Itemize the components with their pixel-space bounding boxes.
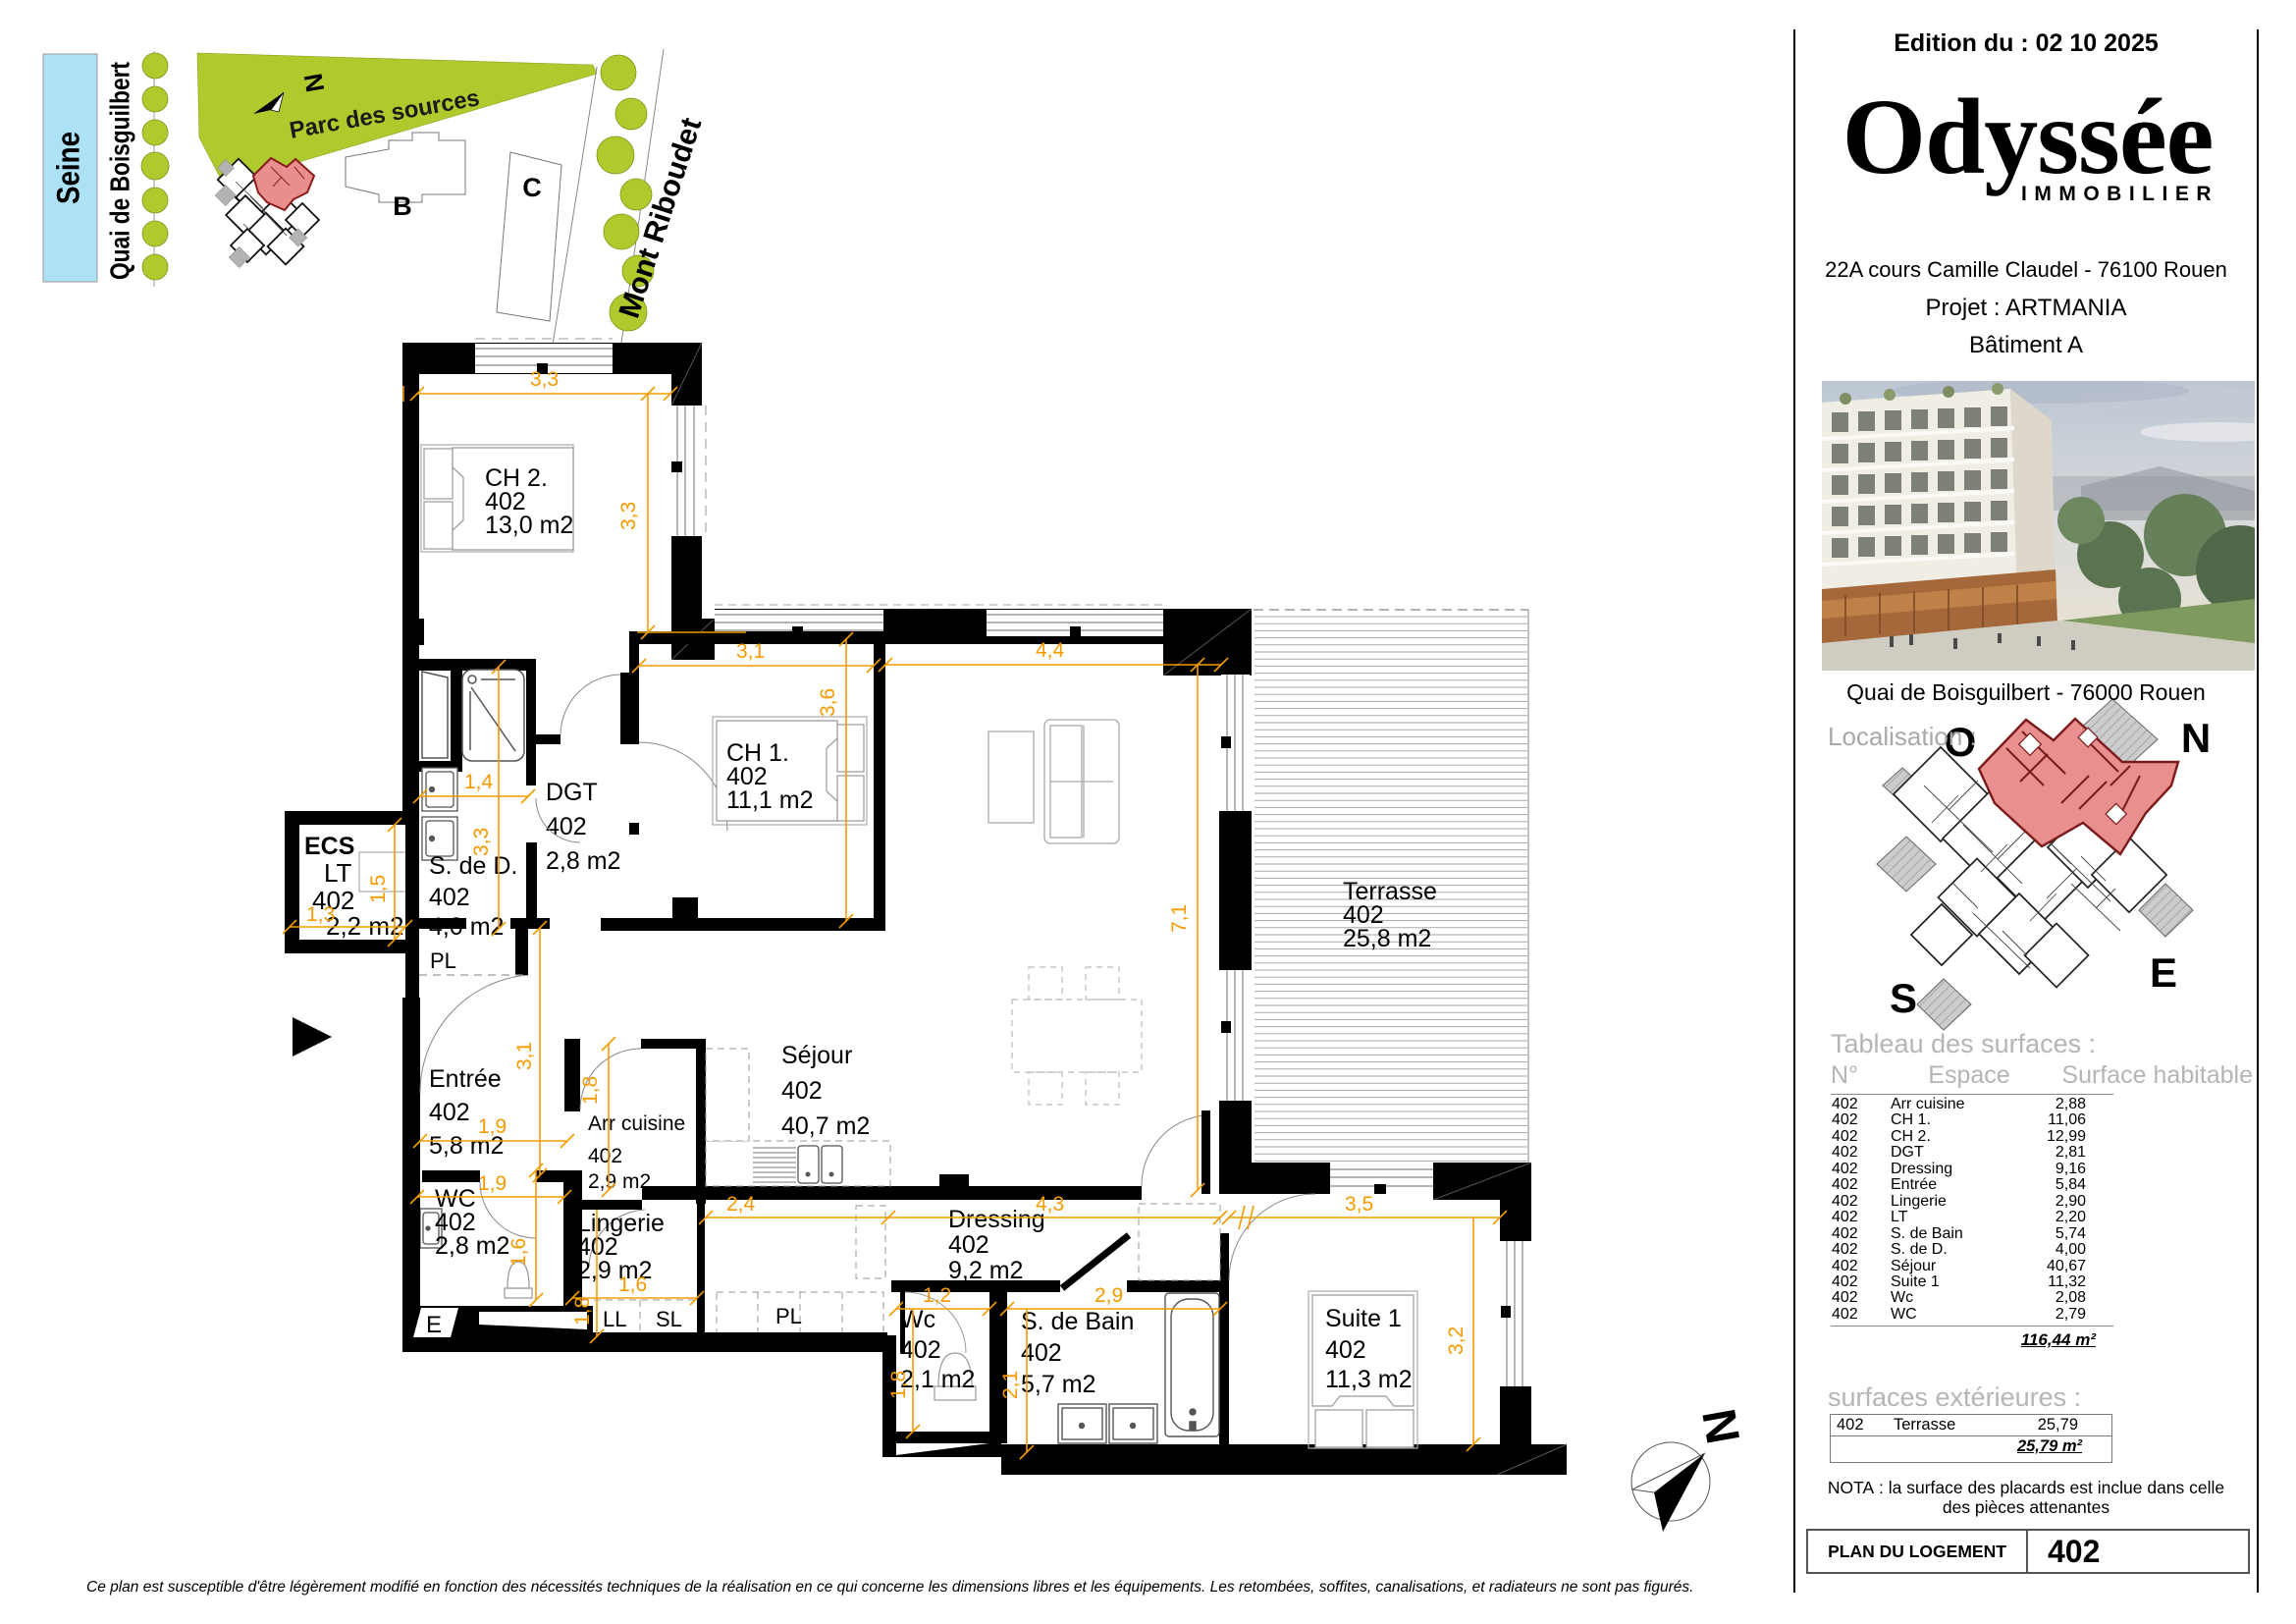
svg-text:N: N bbox=[2181, 715, 2211, 761]
svg-text:E: E bbox=[426, 1312, 442, 1338]
svg-text:402: 402 bbox=[781, 1077, 823, 1105]
svg-text:402: 402 bbox=[546, 813, 587, 840]
svg-text:1,5: 1,5 bbox=[367, 875, 390, 903]
svg-text:C: C bbox=[522, 173, 542, 202]
svg-text:Entrée: Entrée bbox=[429, 1065, 502, 1093]
svg-text:3,3: 3,3 bbox=[530, 368, 559, 391]
svg-text:402: 402 bbox=[948, 1231, 989, 1259]
svg-text:1,8: 1,8 bbox=[579, 1076, 602, 1105]
svg-text:1,9: 1,9 bbox=[478, 1172, 507, 1195]
svg-text:1,6: 1,6 bbox=[618, 1273, 647, 1296]
svg-text:3,6: 3,6 bbox=[817, 688, 839, 717]
svg-text:Arr cuisine: Arr cuisine bbox=[588, 1112, 685, 1135]
svg-text:402: 402 bbox=[900, 1336, 941, 1364]
svg-text:S: S bbox=[1890, 975, 1917, 1021]
svg-text:5,7 m2: 5,7 m2 bbox=[1021, 1371, 1095, 1398]
svg-text:3,5: 3,5 bbox=[1345, 1193, 1373, 1216]
svg-text:3,2: 3,2 bbox=[1445, 1326, 1468, 1355]
svg-text:402: 402 bbox=[588, 1145, 622, 1167]
svg-text:S. de Bain: S. de Bain bbox=[1021, 1308, 1134, 1335]
svg-text:Seine: Seine bbox=[50, 132, 85, 204]
svg-text:PL: PL bbox=[775, 1304, 802, 1328]
svg-text:402: 402 bbox=[1325, 1336, 1366, 1364]
svg-text:4,0 m2: 4,0 m2 bbox=[429, 913, 504, 941]
svg-text:N: N bbox=[1693, 1405, 1750, 1447]
svg-text:1,6: 1,6 bbox=[507, 1238, 530, 1267]
svg-text:3,3: 3,3 bbox=[617, 502, 640, 530]
svg-text:2,2 m2: 2,2 m2 bbox=[326, 911, 404, 941]
svg-text:LL: LL bbox=[603, 1307, 626, 1331]
svg-text:Wc: Wc bbox=[900, 1306, 935, 1333]
svg-text:25,8 m2: 25,8 m2 bbox=[1343, 925, 1431, 952]
svg-text:3,3: 3,3 bbox=[470, 828, 493, 856]
svg-text:2,4: 2,4 bbox=[726, 1193, 756, 1216]
svg-text:402: 402 bbox=[429, 1099, 470, 1126]
svg-text:11,1 m2: 11,1 m2 bbox=[726, 786, 813, 814]
svg-text:Séjour: Séjour bbox=[781, 1042, 852, 1069]
svg-text:2,9 m2: 2,9 m2 bbox=[588, 1170, 651, 1193]
svg-text:1,8: 1,8 bbox=[887, 1371, 910, 1399]
svg-text:4,3: 4,3 bbox=[1036, 1193, 1064, 1216]
svg-text:402: 402 bbox=[429, 884, 470, 911]
svg-text:3,1: 3,1 bbox=[513, 1042, 536, 1070]
svg-text:3,1: 3,1 bbox=[736, 640, 765, 663]
svg-text:E: E bbox=[2150, 949, 2177, 996]
svg-text:1,4: 1,4 bbox=[464, 771, 494, 793]
svg-text:Dressing: Dressing bbox=[948, 1206, 1045, 1233]
svg-text:ECS: ECS bbox=[304, 833, 354, 860]
svg-text:13,0 m2: 13,0 m2 bbox=[485, 512, 573, 539]
svg-text:LT: LT bbox=[324, 858, 352, 888]
svg-text:Quai de Boisguilbert: Quai de Boisguilbert bbox=[104, 62, 134, 280]
svg-text:B: B bbox=[393, 191, 412, 221]
svg-text:PL: PL bbox=[430, 948, 456, 973]
svg-text:1,9: 1,9 bbox=[478, 1115, 507, 1138]
svg-text:1,2: 1,2 bbox=[923, 1284, 951, 1307]
svg-text:2,1 m2: 2,1 m2 bbox=[900, 1366, 975, 1393]
svg-text:7,1: 7,1 bbox=[1168, 904, 1191, 933]
svg-text:Suite 1: Suite 1 bbox=[1325, 1305, 1402, 1332]
svg-text:1,3: 1,3 bbox=[306, 903, 335, 926]
svg-text:2,1: 2,1 bbox=[999, 1371, 1022, 1399]
svg-text:11,3 m2: 11,3 m2 bbox=[1325, 1366, 1412, 1393]
svg-text:40,7 m2: 40,7 m2 bbox=[781, 1112, 870, 1140]
svg-text:9,2 m2: 9,2 m2 bbox=[948, 1257, 1023, 1284]
svg-text:1,8: 1,8 bbox=[571, 1297, 594, 1326]
svg-text:2,8 m2: 2,8 m2 bbox=[435, 1232, 509, 1260]
svg-text:DGT: DGT bbox=[546, 779, 598, 806]
svg-text:2,9: 2,9 bbox=[1095, 1284, 1123, 1307]
svg-text:4,4: 4,4 bbox=[1036, 639, 1065, 662]
svg-text:SL: SL bbox=[656, 1307, 682, 1331]
